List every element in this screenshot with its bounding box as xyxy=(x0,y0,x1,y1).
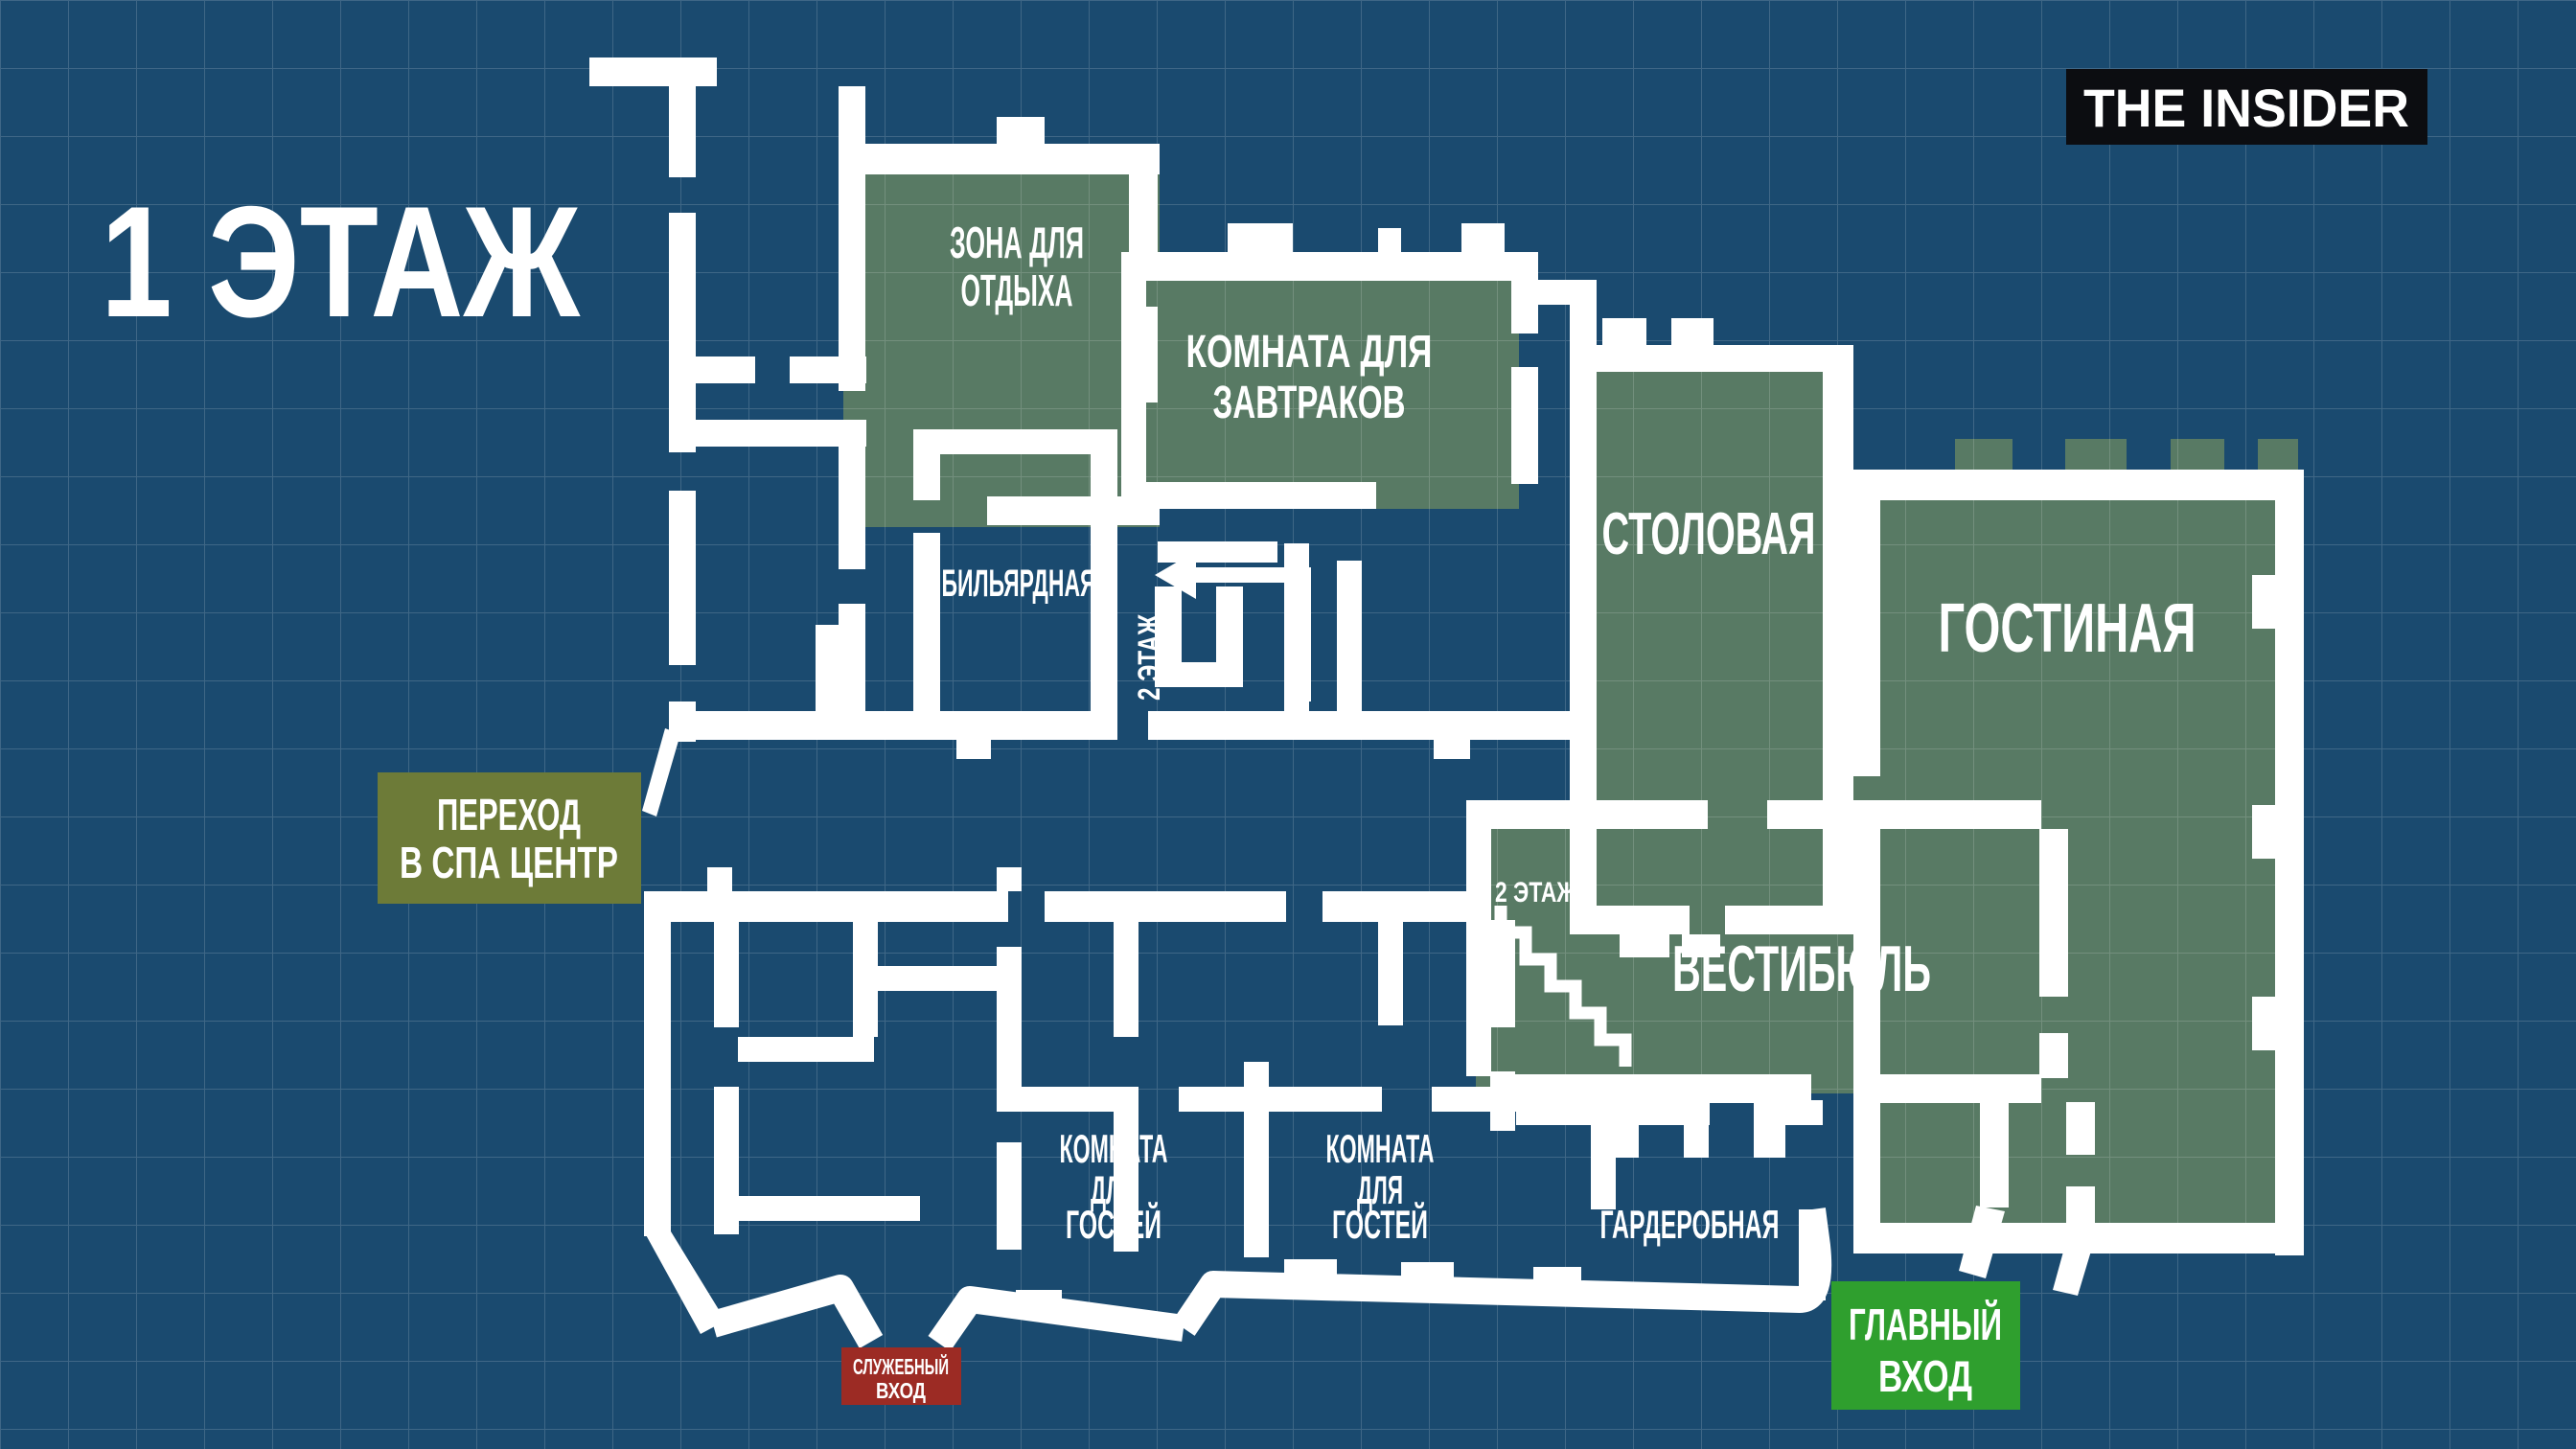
wall xyxy=(1853,470,2304,500)
room-label-guest2: КОМНАТА xyxy=(1326,1126,1435,1171)
room-label-dining: СТОЛОВАЯ xyxy=(1602,501,1816,567)
wall xyxy=(1121,281,1146,486)
door-leaf xyxy=(1620,934,1669,957)
window-notch xyxy=(1401,1262,1454,1277)
stairs-label-floor2-center: 2 ЭТАЖ xyxy=(1132,613,1166,701)
wall xyxy=(1570,906,1690,934)
room-label-living: ГОСТИНАЯ xyxy=(1939,590,2196,667)
wall xyxy=(696,420,866,447)
wall xyxy=(707,867,732,891)
wall xyxy=(669,213,696,452)
wall xyxy=(853,920,878,1037)
wall xyxy=(1434,740,1470,759)
wall xyxy=(1516,1100,1710,1125)
wall xyxy=(816,625,839,711)
window-notch xyxy=(2252,997,2275,1050)
stair-rail xyxy=(1216,586,1243,687)
stairs-label-floor2-vestibule: 2 ЭТАЖ xyxy=(1495,877,1577,908)
logo-the-insider: THE INSIDER xyxy=(2066,69,2427,145)
wall xyxy=(2275,470,2304,1255)
main-entrance-label: ГЛАВНЫЙ xyxy=(1849,1299,2002,1349)
wall xyxy=(1725,906,1853,934)
wall xyxy=(1269,1087,1382,1112)
wall xyxy=(1823,345,1853,934)
wall xyxy=(878,966,997,991)
wall xyxy=(1148,711,1595,740)
service-entrance-marker: СЛУЖЕБНЫЙ ВХОД xyxy=(841,1347,961,1405)
wall xyxy=(1322,891,1468,922)
room-label-guest2: ГОСТЕЙ xyxy=(1332,1201,1428,1247)
wall xyxy=(1022,1087,1129,1112)
wall xyxy=(2066,1186,2095,1239)
wall xyxy=(714,920,739,1027)
wall xyxy=(669,491,696,665)
wall xyxy=(839,144,1160,174)
wall xyxy=(714,1087,739,1234)
main-entrance-marker: ГЛАВНЫЙ ВХОД xyxy=(1831,1281,2020,1410)
wall xyxy=(997,1142,1022,1250)
wall xyxy=(790,356,866,383)
room-label-guest1: ГОСТЕЙ xyxy=(1066,1201,1161,1247)
wall xyxy=(1880,1074,2041,1103)
wall xyxy=(1491,1074,1811,1103)
wall xyxy=(1466,829,1491,1076)
window-notch xyxy=(1533,1267,1581,1282)
wall xyxy=(1490,1071,1515,1131)
room-label-billiard: БИЛЬЯРДНАЯ xyxy=(942,563,1096,605)
room-label-vestibule: ВЕСТИБЮЛЬ xyxy=(1672,932,1931,1005)
stair-rail xyxy=(1337,561,1362,712)
wall xyxy=(1511,252,1538,333)
wall xyxy=(997,867,1022,891)
wall xyxy=(1980,1102,2009,1207)
room-label-breakfast: КОМНАТА ДЛЯ xyxy=(1186,327,1433,378)
window-notch xyxy=(1378,228,1401,254)
wall xyxy=(738,1196,920,1221)
main-entrance-label: ВХОД xyxy=(1878,1351,1972,1401)
wall xyxy=(839,604,865,711)
wall xyxy=(1799,1209,1826,1300)
wall xyxy=(997,947,1022,1112)
window-notch xyxy=(1228,223,1293,254)
wall xyxy=(2039,1033,2068,1078)
window-notch xyxy=(1284,1259,1337,1275)
wall xyxy=(1121,252,1519,281)
wall xyxy=(913,429,940,500)
floor-plan-blueprint: 1 ЭТАЖ ЗОНА ДЛЯ ОТДЫХА КОМНАТА ДЛЯ ЗАВТР… xyxy=(0,0,2576,1449)
wall xyxy=(1853,826,1880,1223)
wall xyxy=(1244,1062,1269,1257)
page-title: 1 ЭТАЖ xyxy=(101,173,581,350)
wall xyxy=(589,57,717,86)
wall xyxy=(1466,800,1708,829)
logo-text: THE INSIDER xyxy=(2083,78,2409,138)
window-notch xyxy=(1016,1290,1062,1305)
window-notch xyxy=(997,117,1045,146)
wall xyxy=(644,920,671,1236)
up-arrow-shaft xyxy=(1296,567,1311,701)
wall xyxy=(940,429,1091,454)
wall xyxy=(1597,345,1848,372)
wall xyxy=(738,1037,874,1062)
room-label-guest1: КОМНАТА xyxy=(1060,1126,1168,1171)
wall xyxy=(1570,280,1597,934)
wall xyxy=(1591,1125,1616,1209)
service-entrance-label: СЛУЖЕБНЫЙ xyxy=(853,1353,949,1379)
wall xyxy=(1045,891,1286,922)
wall xyxy=(1378,920,1403,1025)
spa-passage-label: ПЕРЕХОД xyxy=(437,790,581,839)
window-notch xyxy=(1461,223,1505,254)
spa-passage-label: В СПА ЦЕНТР xyxy=(400,838,618,887)
wall xyxy=(1114,920,1138,1037)
up-arrow-shaft xyxy=(1196,567,1311,583)
wall xyxy=(839,447,865,569)
room-label-breakfast: ЗАВТРАКОВ xyxy=(1213,378,1406,428)
wall xyxy=(1767,800,2041,829)
service-entrance-label: ВХОД xyxy=(876,1378,926,1403)
window-notch xyxy=(2252,575,2275,629)
wall xyxy=(2066,1102,2095,1155)
wall xyxy=(644,891,1008,922)
wall xyxy=(1129,174,1158,265)
wall xyxy=(669,711,1117,740)
wall xyxy=(1853,500,1880,776)
wall xyxy=(2039,829,2068,997)
wall xyxy=(1765,1100,1823,1125)
stair-rail xyxy=(1158,541,1277,563)
wall xyxy=(696,356,755,383)
wall xyxy=(839,86,865,391)
spa-passage-marker: ПЕРЕХОД В СПА ЦЕНТР xyxy=(378,772,641,904)
wall xyxy=(956,740,991,759)
window-notch xyxy=(2252,805,2275,859)
room-label-rest-area: ОТДЫХА xyxy=(961,265,1073,315)
room-label-wardrobe: ГАРДЕРОБНАЯ xyxy=(1600,1202,1780,1247)
wall xyxy=(669,57,696,177)
wall xyxy=(913,533,940,713)
window-notch xyxy=(1671,318,1713,347)
room-label-rest-area: ЗОНА ДЛЯ xyxy=(950,218,1084,267)
window-notch xyxy=(1602,318,1646,347)
wall xyxy=(1121,482,1376,509)
wall xyxy=(1179,1087,1246,1112)
wall xyxy=(1511,367,1538,484)
